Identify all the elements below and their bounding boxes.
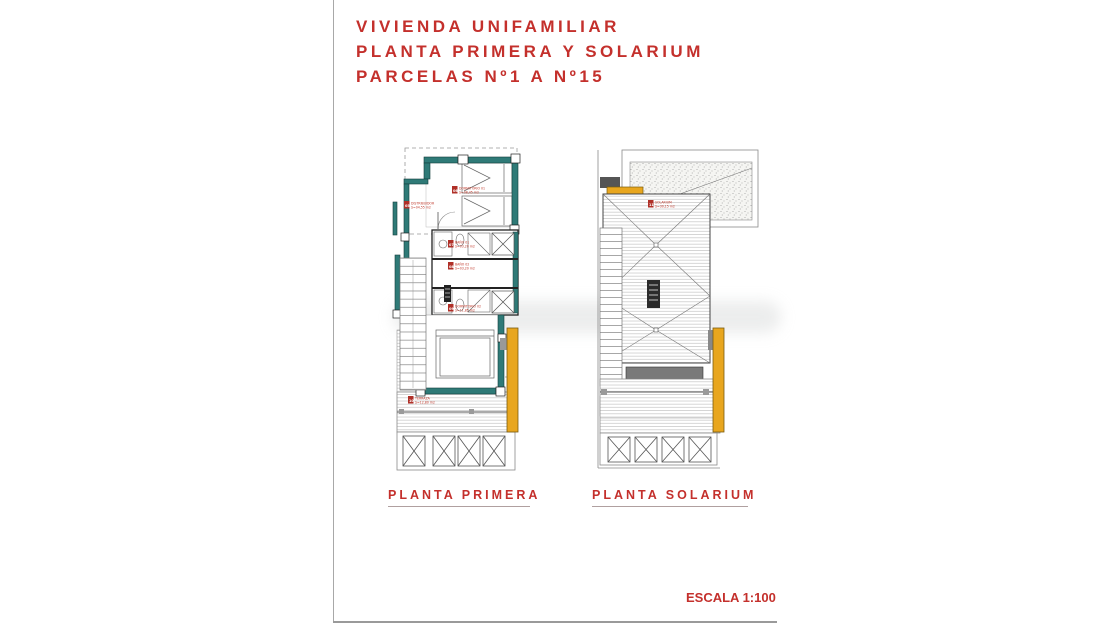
stairs-solarium [600, 228, 622, 386]
bathrooms [432, 230, 518, 315]
plan-primera: 05 DISTRIBUIDOR S=04,55 m2 06 DORMITORIO… [393, 148, 520, 470]
svg-text:10: 10 [409, 399, 414, 403]
svg-text:08: 08 [449, 265, 454, 269]
svg-text:S=04,55 m2: S=04,55 m2 [411, 206, 431, 210]
room-label-distribuidor: 05 DISTRIBUIDOR S=04,55 m2 [404, 201, 435, 210]
svg-text:05: 05 [405, 204, 410, 208]
stair-bulkhead [647, 280, 660, 308]
lattice-solarium [600, 433, 717, 465]
roof-drain-2 [654, 328, 658, 332]
scale-label: ESCALA 1:100 [686, 590, 776, 605]
double-bed [436, 330, 494, 378]
duct-shaft [444, 285, 451, 302]
svg-text:S=08,45 m2: S=08,45 m2 [459, 191, 479, 195]
svg-text:07: 07 [449, 243, 454, 247]
svg-text:S=11,85 m2: S=11,85 m2 [455, 309, 475, 313]
caption-planta-solarium: PLANTA SOLARIUM [592, 488, 748, 507]
roof-drain-1 [654, 243, 658, 247]
svg-text:S=30,15 m2: S=30,15 m2 [655, 205, 675, 209]
svg-text:S=12,80 m2: S=12,80 m2 [415, 401, 435, 405]
pergola-beam [626, 367, 703, 379]
yellow-feature-wall-top [607, 187, 643, 194]
plan-solarium: 11 SOLARIUM S=30,15 m2 [598, 150, 758, 468]
yellow-feature-wall-solarium [713, 328, 724, 432]
svg-text:S=03,20 m2: S=03,20 m2 [455, 245, 475, 249]
lattice-primera [397, 432, 515, 470]
svg-text:11: 11 [649, 203, 654, 207]
svg-text:S=03,20 m2: S=03,20 m2 [455, 267, 475, 271]
svg-text:06: 06 [453, 189, 458, 193]
roof-gray-block [600, 177, 620, 188]
stairs-primera [400, 258, 426, 390]
caption-planta-primera: PLANTA PRIMERA [388, 488, 530, 507]
yellow-feature-wall-primera [507, 328, 518, 432]
svg-text:09: 09 [449, 307, 454, 311]
room-label-solarium: 11 SOLARIUM S=30,15 m2 [648, 200, 675, 209]
floorplan-drawing: 05 DISTRIBUIDOR S=04,55 m2 06 DORMITORIO… [0, 0, 1110, 626]
lower-terrace [600, 379, 720, 433]
